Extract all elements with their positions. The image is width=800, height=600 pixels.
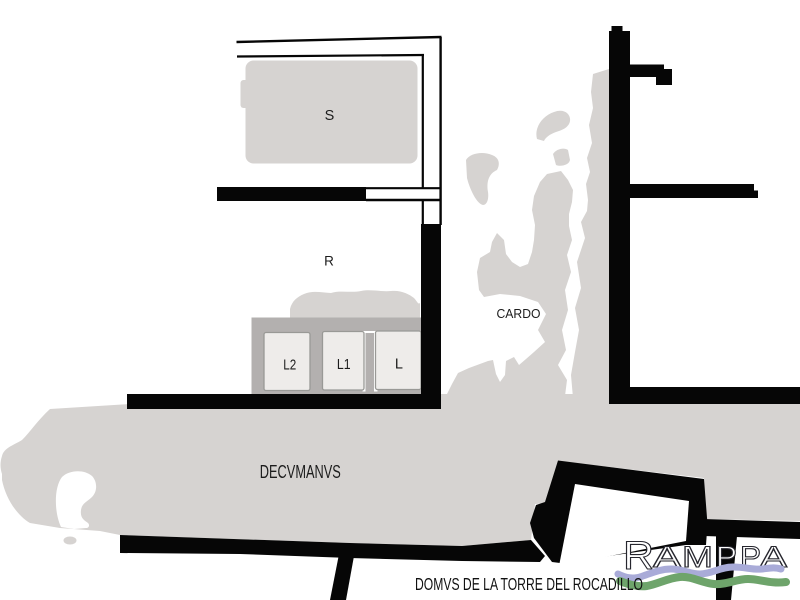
svg-text:CARDO: CARDO: [497, 307, 541, 321]
svg-text:R: R: [324, 254, 334, 269]
svg-text:S: S: [325, 108, 335, 124]
svg-text:L2: L2: [283, 357, 296, 373]
svg-text:DECVMANVS: DECVMANVS: [260, 461, 341, 482]
svg-text:L1: L1: [337, 357, 351, 373]
svg-text:DOMVS DE LA TORRE DEL ROCADILL: DOMVS DE LA TORRE DEL ROCADILLO: [415, 574, 643, 594]
svg-text:L: L: [395, 357, 403, 373]
